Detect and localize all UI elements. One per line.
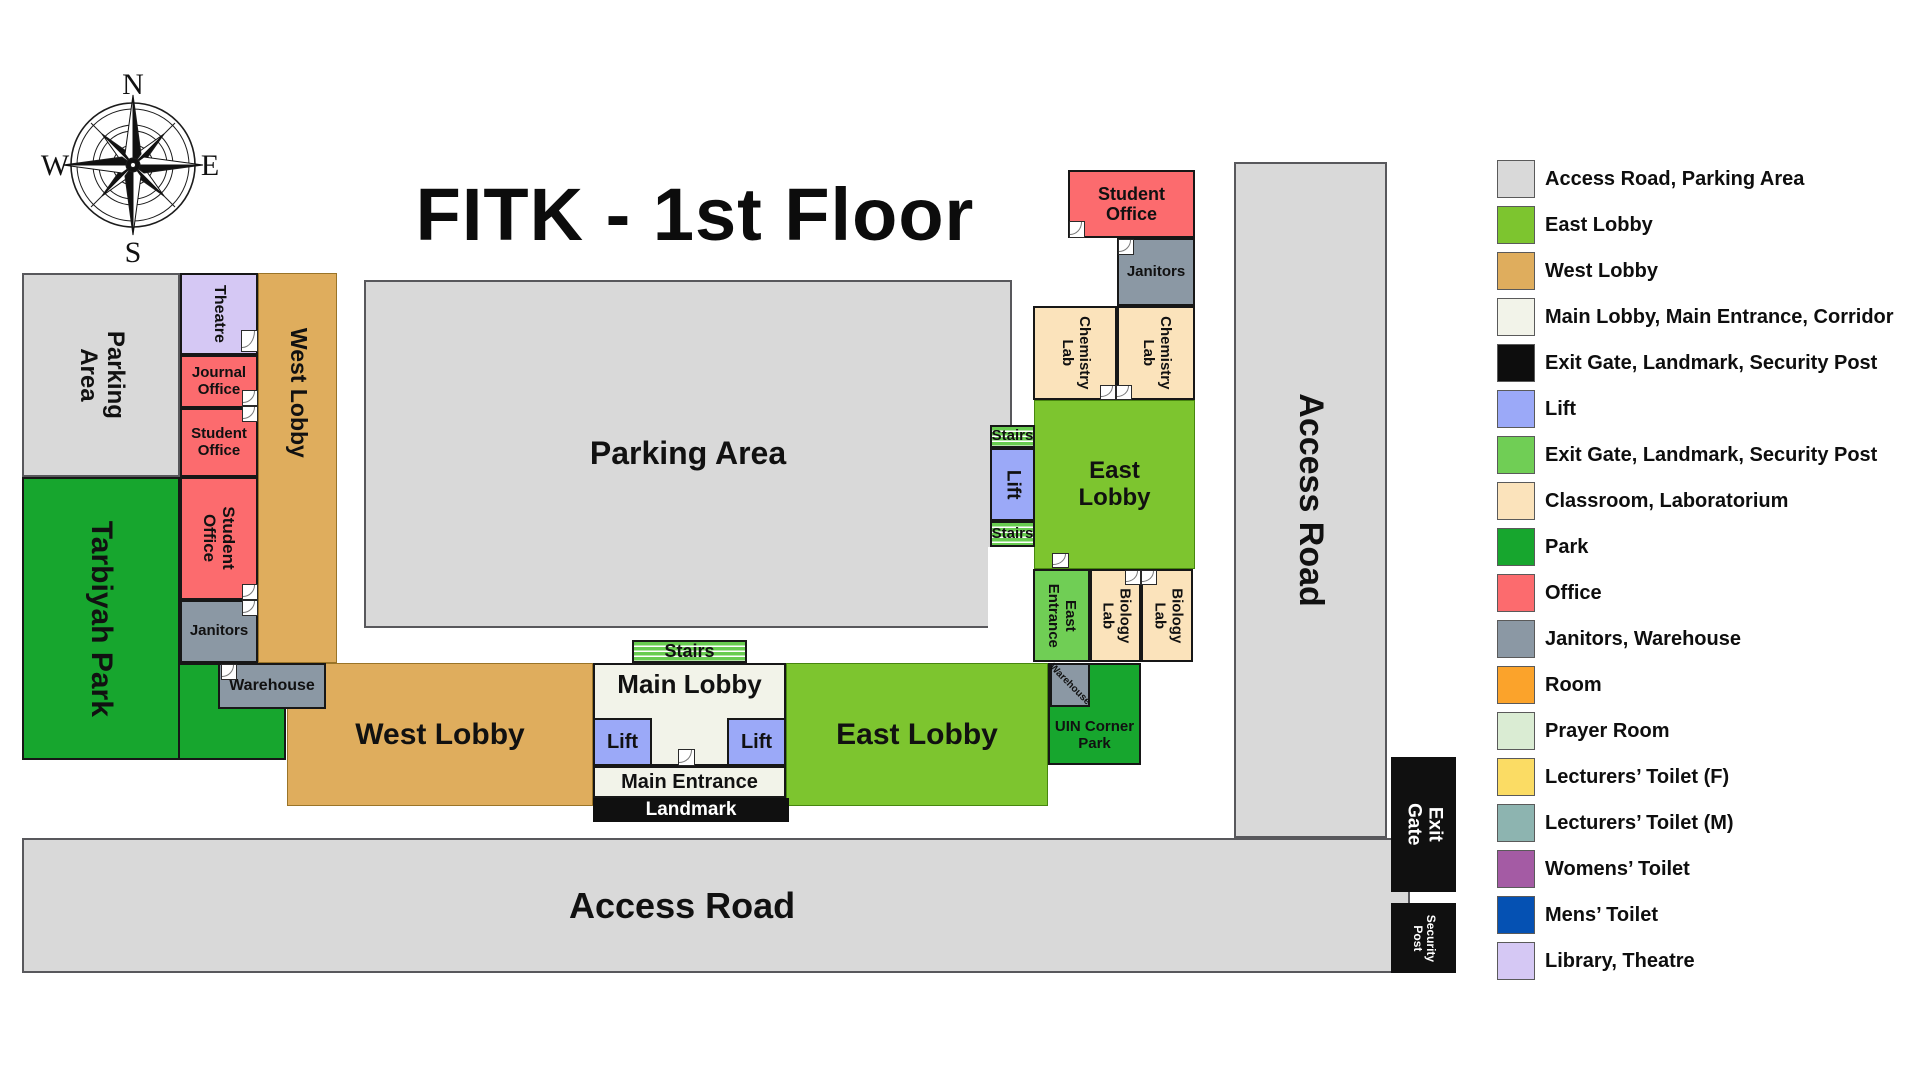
tarbiyah-park-label: Tarbiyah Park	[84, 520, 118, 716]
legend: Access Road, Parking AreaEast LobbyWest …	[1497, 160, 1894, 988]
legend-item: Exit Gate, Landmark, Security Post	[1497, 436, 1894, 474]
main-entrance: Main Entrance	[593, 766, 786, 798]
access-road-south: Access Road	[22, 838, 1410, 973]
legend-label: Exit Gate, Landmark, Security Post	[1545, 352, 1877, 375]
door-icon	[1116, 385, 1132, 400]
warehouse-east-label: Warehouse	[1047, 662, 1093, 708]
door-icon	[1118, 239, 1134, 255]
student-office-upper-label: Student Office	[189, 426, 249, 460]
legend-item: Lecturers’ Toilet (F)	[1497, 758, 1894, 796]
west-lobby-wing: West Lobby	[258, 273, 337, 663]
theatre-label: Theatre	[210, 285, 228, 343]
legend-swatch	[1497, 344, 1535, 382]
west-lobby: West Lobby	[287, 663, 593, 806]
janitors-east-label: Janitors	[1127, 264, 1185, 281]
parking-area-main-label: Parking Area	[590, 436, 786, 472]
legend-item: Access Road, Parking Area	[1497, 160, 1894, 198]
chemistry-lab-east-label: Chemistry Lab	[1139, 316, 1173, 390]
legend-label: Lecturers’ Toilet (M)	[1545, 812, 1734, 835]
legend-swatch	[1497, 574, 1535, 612]
door-icon	[242, 406, 258, 422]
legend-swatch	[1497, 390, 1535, 428]
legend-swatch	[1497, 206, 1535, 244]
landmark: Landmark	[593, 798, 789, 822]
legend-swatch	[1497, 666, 1535, 704]
lift-east: Lift	[990, 448, 1035, 521]
door-icon	[678, 749, 695, 766]
door-icon	[242, 584, 258, 600]
east-entrance-label: East Entrance	[1045, 583, 1079, 647]
legend-label: Prayer Room	[1545, 720, 1670, 743]
access-road-east-label: Access Road	[1291, 393, 1329, 607]
legend-swatch	[1497, 942, 1535, 980]
legend-item: Janitors, Warehouse	[1497, 620, 1894, 658]
door-icon	[241, 330, 258, 352]
legend-swatch	[1497, 482, 1535, 520]
stairs-main: Stairs	[632, 640, 747, 663]
stairs-lower-label: Stairs	[992, 526, 1034, 543]
lift-right-label: Lift	[741, 731, 772, 753]
student-office-lower: Student Office	[180, 477, 258, 600]
door-icon	[1141, 570, 1157, 585]
door-icon	[221, 664, 237, 680]
east-lobby-block: East Lobby	[1034, 400, 1195, 569]
stairs-upper-label: Stairs	[992, 428, 1034, 445]
legend-item: Lift	[1497, 390, 1894, 428]
legend-swatch	[1497, 252, 1535, 290]
parking-area-west-label: Parking Area	[74, 319, 128, 431]
main-entrance-label: Main Entrance	[621, 771, 758, 793]
legend-label: Main Lobby, Main Entrance, Corridor	[1545, 306, 1894, 329]
legend-label: Womens’ Toilet	[1545, 858, 1690, 881]
legend-label: Classroom, Laboratorium	[1545, 490, 1788, 513]
door-icon	[1052, 553, 1069, 568]
legend-label: Park	[1545, 536, 1588, 559]
stairs-main-label: Stairs	[664, 641, 714, 661]
legend-swatch	[1497, 712, 1535, 750]
journal-office-label: Journal Office	[189, 365, 249, 399]
lift-east-label: Lift	[1002, 470, 1023, 500]
legend-label: Office	[1545, 582, 1602, 605]
lift-right: Lift	[727, 718, 786, 766]
legend-label: Mens’ Toilet	[1545, 904, 1658, 927]
legend-item: Park	[1497, 528, 1894, 566]
legend-label: Exit Gate, Landmark, Security Post	[1545, 444, 1877, 467]
chemistry-lab-west-label: Chemistry Lab	[1058, 313, 1092, 393]
legend-swatch	[1497, 436, 1535, 474]
uin-corner-park-label: UIN Corner Park	[1055, 719, 1135, 753]
corridor-gap	[988, 547, 1014, 628]
biology-lab-west-label: Biology Lab	[1099, 588, 1133, 643]
compass-north-label: N	[122, 68, 144, 101]
legend-item: Prayer Room	[1497, 712, 1894, 750]
access-road-east: Access Road	[1234, 162, 1387, 838]
security-post: Security Post	[1391, 903, 1456, 973]
parking-area-west: Parking Area	[22, 273, 180, 477]
legend-item: Exit Gate, Landmark, Security Post	[1497, 344, 1894, 382]
legend-label: Library, Theatre	[1545, 950, 1695, 973]
legend-item: Mens’ Toilet	[1497, 896, 1894, 934]
door-icon	[242, 600, 258, 616]
legend-swatch	[1497, 620, 1535, 658]
floor-plan: N E S W FITK - 1st Floor Parking Area Ta…	[0, 0, 1920, 1080]
legend-label: East Lobby	[1545, 214, 1653, 237]
legend-swatch	[1497, 850, 1535, 888]
legend-item: Lecturers’ Toilet (M)	[1497, 804, 1894, 842]
warehouse-east: Warehouse	[1050, 663, 1090, 707]
legend-label: Lift	[1545, 398, 1576, 421]
landmark-label: Landmark	[646, 799, 737, 820]
legend-label: Lecturers’ Toilet (F)	[1545, 766, 1729, 789]
biology-lab-east-label: Biology Lab	[1150, 588, 1184, 643]
exit-gate: Exit Gate	[1391, 757, 1456, 892]
legend-item: Library, Theatre	[1497, 942, 1894, 980]
legend-swatch	[1497, 804, 1535, 842]
east-lobby-block-label: East Lobby	[1075, 458, 1155, 512]
student-office-east-label: Student Office	[1089, 184, 1174, 224]
legend-label: Room	[1545, 674, 1602, 697]
east-lobby: East Lobby	[786, 663, 1048, 806]
legend-swatch	[1497, 896, 1535, 934]
exit-gate-label: Exit Gate	[1402, 800, 1445, 850]
main-lobby-label: Main Lobby	[617, 670, 761, 699]
legend-label: Access Road, Parking Area	[1545, 168, 1804, 191]
legend-item: Office	[1497, 574, 1894, 612]
janitors-west-label: Janitors	[190, 623, 248, 640]
legend-swatch	[1497, 160, 1535, 198]
east-entrance: East Entrance	[1033, 569, 1090, 662]
warehouse-west-label: Warehouse	[229, 677, 315, 695]
legend-item: Room	[1497, 666, 1894, 704]
door-icon	[242, 390, 258, 406]
lift-left: Lift	[593, 718, 652, 766]
door-icon	[1100, 385, 1116, 400]
security-post-label: Security Post	[1410, 911, 1437, 966]
legend-item: East Lobby	[1497, 206, 1894, 244]
legend-item: West Lobby	[1497, 252, 1894, 290]
access-road-south-label: Access Road	[569, 886, 795, 926]
student-office-lower-label: Student Office	[200, 502, 238, 576]
legend-swatch	[1497, 528, 1535, 566]
parking-area-main: Parking Area	[364, 280, 1012, 628]
stairs-lower: Stairs	[990, 521, 1035, 547]
lift-left-label: Lift	[607, 731, 638, 753]
legend-item: Womens’ Toilet	[1497, 850, 1894, 888]
east-lobby-label: East Lobby	[836, 718, 998, 752]
student-office-east: Student Office	[1068, 170, 1195, 238]
legend-label: Janitors, Warehouse	[1545, 628, 1741, 651]
legend-swatch	[1497, 758, 1535, 796]
legend-swatch	[1497, 298, 1535, 336]
door-icon	[1125, 570, 1141, 585]
west-lobby-wing-label: West Lobby	[285, 328, 311, 458]
stairs-upper: Stairs	[990, 425, 1035, 448]
legend-item: Main Lobby, Main Entrance, Corridor	[1497, 298, 1894, 336]
door-icon	[1069, 221, 1085, 238]
legend-label: West Lobby	[1545, 260, 1658, 283]
west-lobby-label: West Lobby	[355, 718, 524, 752]
tarbiyah-park: Tarbiyah Park	[22, 477, 180, 760]
legend-item: Classroom, Laboratorium	[1497, 482, 1894, 520]
